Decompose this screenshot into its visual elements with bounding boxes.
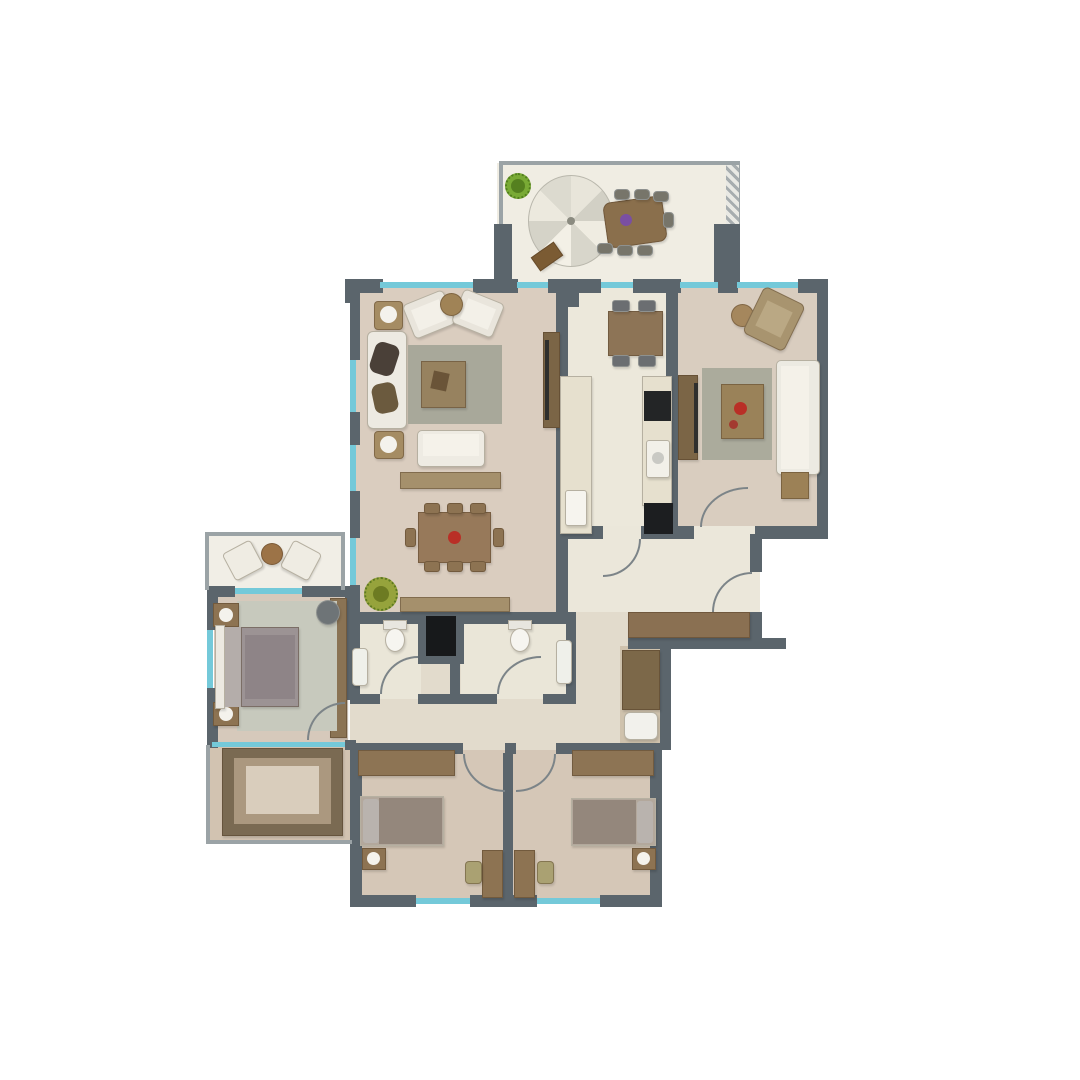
toilet-bowl xyxy=(510,628,530,652)
dining-chair xyxy=(447,561,463,572)
wall xyxy=(718,279,738,293)
master-blanket xyxy=(245,635,295,699)
bed-blanket xyxy=(573,800,636,844)
balcony-table xyxy=(261,543,283,565)
window xyxy=(350,360,356,412)
tv-screen xyxy=(545,340,549,420)
bath-sink xyxy=(352,648,368,686)
entry-sideboard xyxy=(628,612,750,638)
table-lamp xyxy=(380,436,397,453)
lower-terrace-wall xyxy=(206,745,210,844)
fridge xyxy=(644,503,673,534)
terrace-pillar xyxy=(714,224,740,282)
terrace-chair xyxy=(653,191,669,202)
wall xyxy=(678,526,694,539)
terrace-pillar xyxy=(494,224,512,282)
wall xyxy=(350,491,360,538)
window xyxy=(235,588,302,594)
faucet xyxy=(652,452,664,464)
dining-chair xyxy=(447,503,463,514)
dining-chair xyxy=(493,528,504,547)
wardrobe xyxy=(358,750,455,776)
desk-chair xyxy=(465,861,482,884)
side-table xyxy=(781,472,809,499)
table-lamp xyxy=(219,608,233,622)
wall xyxy=(418,694,455,704)
table-lamp xyxy=(380,306,397,323)
terrace-wall xyxy=(499,161,740,165)
balcony-wall xyxy=(341,532,345,590)
desk-chair xyxy=(537,861,554,884)
terrace-bowl xyxy=(620,214,632,226)
washing-machine xyxy=(624,712,658,740)
table-lamp xyxy=(219,707,233,721)
flower-decor xyxy=(734,402,747,415)
kitchen-chair xyxy=(612,355,630,367)
window xyxy=(350,445,356,491)
wall xyxy=(755,526,827,539)
window xyxy=(212,742,345,747)
kitchen-chair xyxy=(612,300,630,312)
kitchen-table xyxy=(608,311,663,356)
bath-sink xyxy=(556,640,572,684)
terrace-chair xyxy=(617,245,633,256)
terrace-rug-inner xyxy=(246,766,319,814)
flower-decor xyxy=(729,420,738,429)
wall xyxy=(750,534,762,572)
terrace-wall-hatched xyxy=(726,165,739,229)
dining-chair xyxy=(424,503,440,514)
living-plant-center xyxy=(373,586,389,602)
wall xyxy=(600,895,662,907)
sofa-cushion xyxy=(423,434,479,456)
master-headboard xyxy=(215,625,225,709)
table-lamp xyxy=(637,852,650,865)
dining-chair xyxy=(405,528,416,547)
bed-pillow xyxy=(637,801,653,843)
terrace-chair xyxy=(637,245,653,256)
terrace-dining-table xyxy=(602,195,668,249)
floor-plan xyxy=(0,0,1080,1080)
window xyxy=(680,282,718,288)
hall-closet xyxy=(622,650,660,710)
dining-chair xyxy=(424,561,440,572)
wall xyxy=(350,694,380,704)
terrace-chair xyxy=(597,243,613,254)
kitchen-chair xyxy=(638,300,656,312)
shaft xyxy=(426,616,456,656)
sideboard xyxy=(400,472,501,489)
window xyxy=(517,282,548,288)
bed-blanket xyxy=(379,798,442,844)
desk xyxy=(482,850,503,898)
terrace-plant-center xyxy=(511,179,525,193)
floor-plan-image xyxy=(0,0,1080,1080)
balcony-wall xyxy=(205,532,345,536)
sofa-cushion xyxy=(781,366,809,469)
dining-chair xyxy=(470,503,486,514)
bedroom-chair xyxy=(316,600,340,625)
cooktop xyxy=(644,391,671,421)
dining-centerpiece xyxy=(448,531,461,544)
bed-pillow xyxy=(363,799,379,843)
window xyxy=(416,898,470,904)
table-lamp xyxy=(367,852,380,865)
wall xyxy=(660,645,671,750)
wardrobe xyxy=(572,750,654,776)
window xyxy=(537,898,600,904)
wall xyxy=(543,694,576,704)
lower-terrace-wall xyxy=(206,840,352,844)
wall xyxy=(350,283,360,360)
wall xyxy=(350,895,416,907)
window xyxy=(207,630,213,688)
shaft-wall xyxy=(418,655,464,664)
wall xyxy=(473,279,518,293)
kitchen-chair xyxy=(638,355,656,367)
tv-screen xyxy=(694,383,698,453)
terrace-chair xyxy=(634,189,650,200)
balcony-wall xyxy=(205,532,209,590)
wall xyxy=(350,412,360,445)
wall xyxy=(628,638,786,649)
wall xyxy=(455,694,497,704)
window xyxy=(380,282,473,288)
balcony-door-window xyxy=(350,538,356,585)
kitchen-sink xyxy=(565,490,587,526)
desk xyxy=(514,850,535,898)
parasol-pole xyxy=(567,217,575,225)
window xyxy=(601,282,633,288)
master-pillows xyxy=(225,627,241,707)
sideboard xyxy=(400,597,510,612)
terrace-chair xyxy=(663,212,674,228)
terrace-chair xyxy=(614,189,630,200)
dining-chair xyxy=(470,561,486,572)
round-stool xyxy=(440,293,463,316)
toilet-bowl xyxy=(385,628,405,652)
